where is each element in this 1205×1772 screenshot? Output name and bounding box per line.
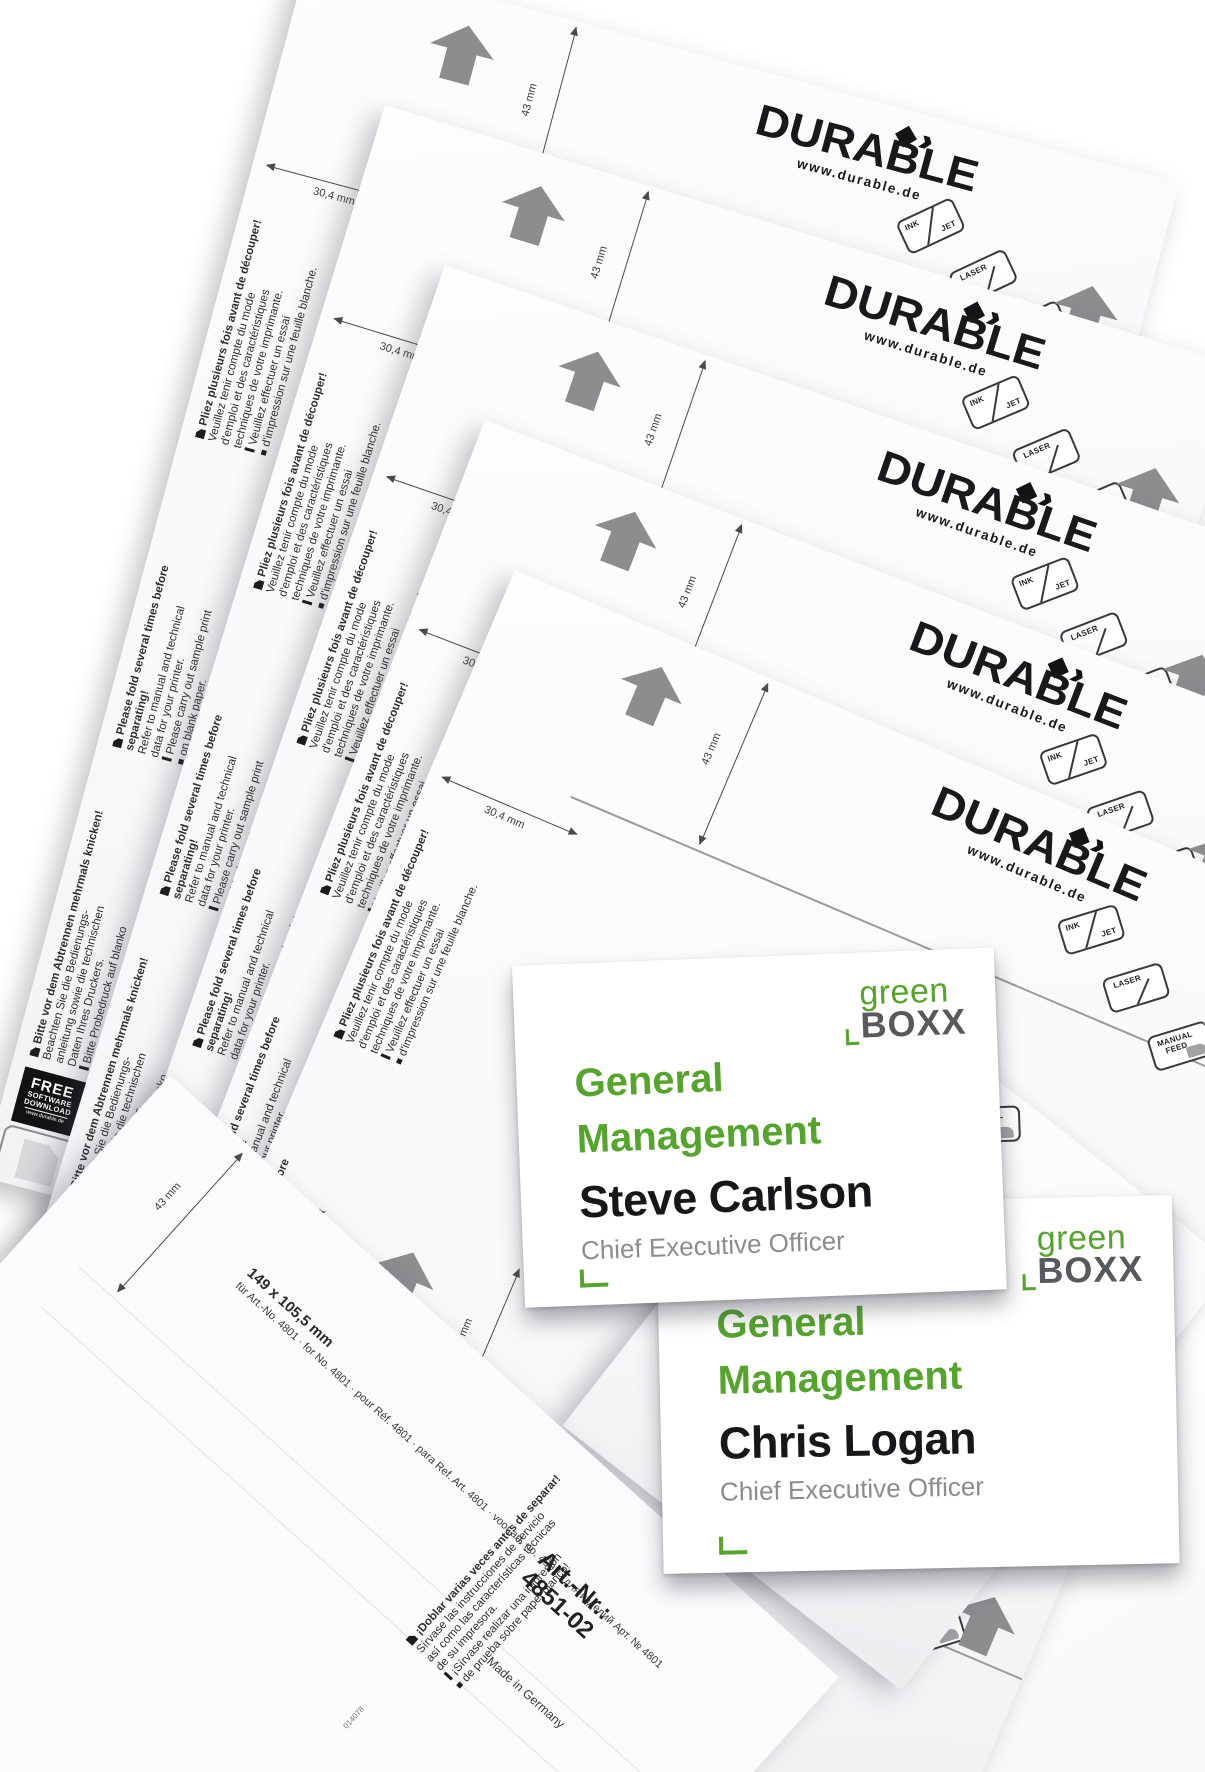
note-marker-icon — [302, 600, 312, 606]
fold-marker-icon — [29, 1046, 40, 1057]
durable-logo: ›› DURABLE www.durable.de — [703, 86, 1028, 228]
feed-direction-arrow-icon — [548, 341, 629, 417]
printer-compatibility-icons: INKJET LASER MANUALFEED — [1019, 901, 1205, 1122]
note-marker-icon — [380, 1053, 390, 1060]
dimension-label: 43 mm — [699, 731, 723, 767]
person-title: Chief Executive Officer — [720, 1473, 984, 1505]
greenboxx-logo: green BOXX — [842, 975, 967, 1044]
dimension-label: 43 mm — [519, 82, 539, 118]
inkjet-icon: INKJET — [960, 374, 1031, 431]
dimension-label: 43 mm — [588, 245, 609, 281]
print-code: 014078 — [340, 1689, 380, 1732]
name-badge-card-steve: green BOXX General Management Steve Carl… — [512, 947, 1007, 1307]
fold-marker-icon — [320, 884, 332, 896]
note-marker-icon — [244, 447, 254, 452]
dimension-label: 43 mm — [642, 412, 664, 448]
person-name: Chris Logan — [719, 1415, 977, 1466]
note-marker-icon — [444, 1672, 453, 1681]
fold-marker-icon — [333, 1028, 345, 1040]
made-in-label: Made in Germany — [484, 1654, 567, 1731]
inkjet-icon: INKJET — [1038, 732, 1108, 786]
person-name: Steve Carlson — [578, 1168, 873, 1225]
dimension-43mm: 43 mm — [100, 1137, 252, 1301]
department-label: General Management — [716, 1292, 963, 1409]
feed-direction-arrow-icon — [422, 17, 501, 90]
inkjet-icon: INKJET — [895, 197, 966, 256]
instructions-spanish: ¡Doblar varias veces antes de separar! S… — [405, 1452, 632, 1692]
corner-bracket-icon — [580, 1269, 609, 1288]
inkjet-icon: INKJET — [1010, 556, 1081, 612]
department-label: General Management — [573, 1046, 822, 1167]
product-photo: 43 mm ›› DURABLE www.durable.de INKJET L… — [0, 0, 1205, 1772]
person-title: Chief Executive Officer — [580, 1227, 845, 1263]
dimension-arrow-line — [118, 1153, 243, 1292]
fold-marker-icon — [253, 579, 264, 590]
bullet-icon — [318, 603, 324, 609]
corner-bracket-icon — [719, 1536, 747, 1555]
feed-direction-arrow-icon — [609, 654, 692, 733]
dimension-label: 43 mm — [676, 574, 699, 610]
note-marker-icon — [79, 1065, 89, 1070]
greenboxx-logo-bottom: BOXX — [1020, 1252, 1144, 1289]
feed-direction-arrow-icon — [583, 500, 665, 578]
bullet-icon — [261, 450, 267, 456]
bullet-icon — [456, 1682, 463, 1689]
inkjet-icon: INKJET — [1056, 903, 1126, 956]
dimension-label: 43 mm — [152, 1180, 183, 1213]
manual-feed-icon: MANUALFEED — [1146, 1020, 1205, 1073]
fold-marker-icon — [195, 428, 206, 439]
page-icon — [14, 1139, 61, 1187]
greenboxx-logo: green BOXX — [1019, 1222, 1143, 1289]
laser-icon: LASER — [1101, 962, 1171, 1015]
greenboxx-logo-bottom: BOXX — [843, 1005, 967, 1044]
fold-marker-icon — [296, 734, 307, 745]
bullet-icon — [396, 1058, 403, 1065]
dimension-43mm: 43 mm — [679, 673, 780, 850]
feed-direction-arrow-icon — [493, 177, 573, 252]
